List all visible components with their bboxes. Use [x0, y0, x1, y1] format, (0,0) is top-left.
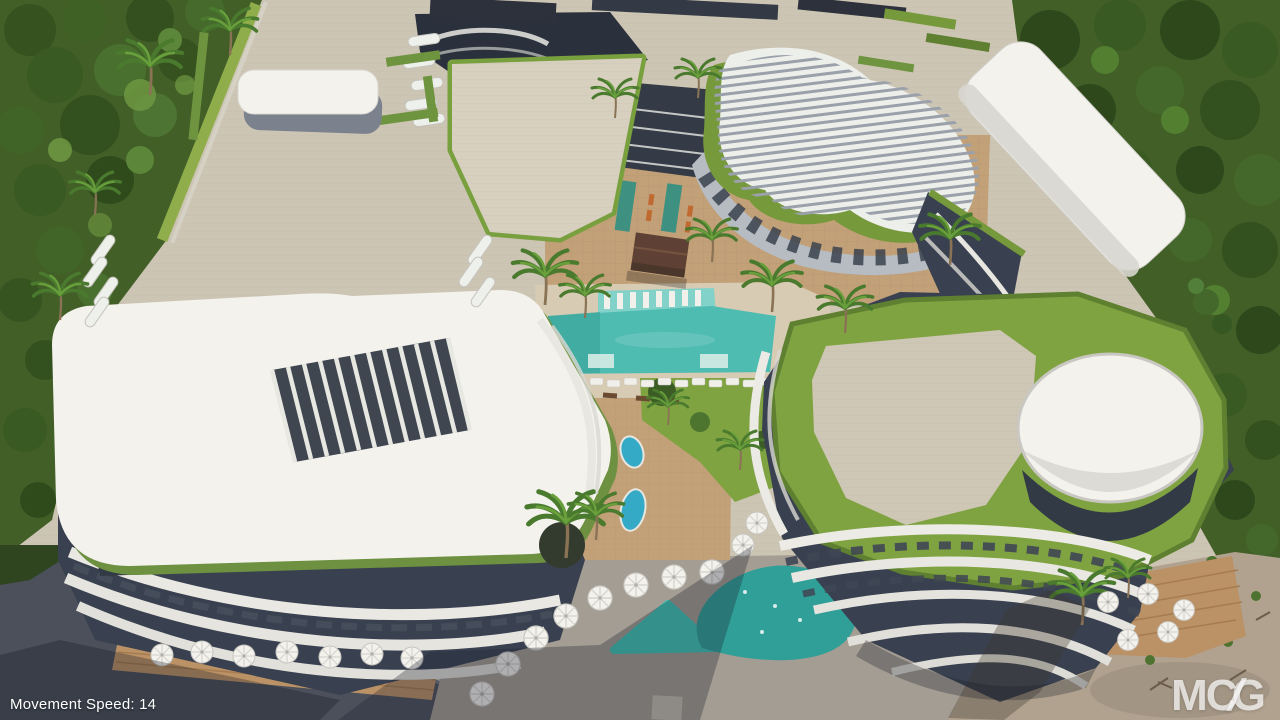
mcg-watermark-logo: MC / G: [1171, 674, 1264, 718]
pavilion-roof: [238, 70, 378, 114]
movement-speed-hud: Movement Speed: 14: [10, 696, 156, 713]
archviz-walkthrough-app: Movement Speed: 14 MC / G: [0, 0, 1280, 720]
cabana: [626, 232, 692, 289]
water-reflection: [615, 332, 715, 348]
roof-palm-court: [539, 522, 585, 568]
aerial-render-viewport[interactable]: [0, 0, 1280, 720]
submerged-platform: [588, 354, 614, 368]
entrance-pavilion: [238, 70, 383, 134]
submerged-platform: [700, 354, 728, 368]
